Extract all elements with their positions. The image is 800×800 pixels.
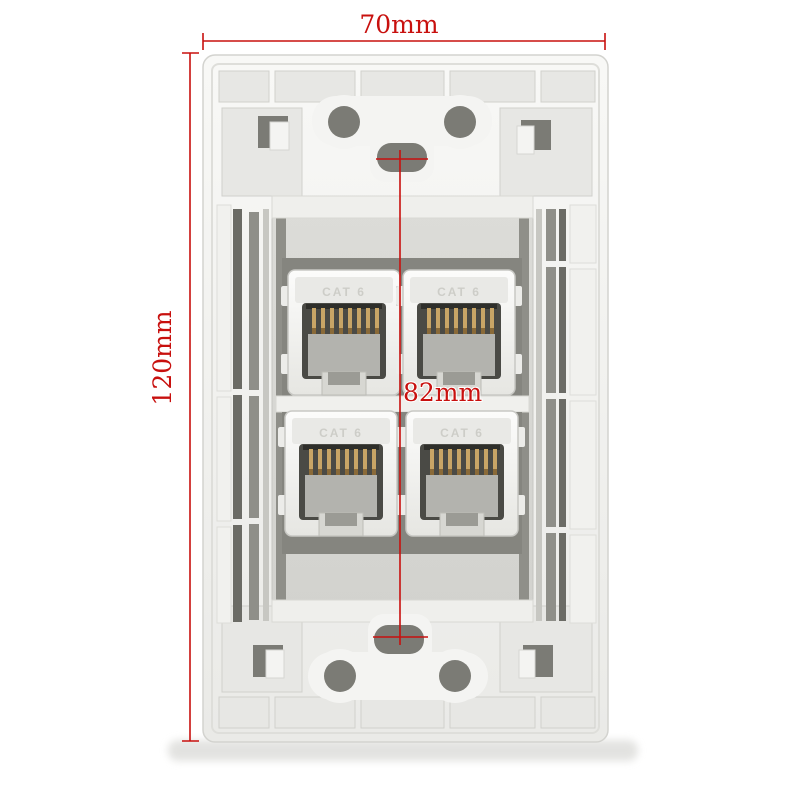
jack-cat6-label: CAT 6 bbox=[322, 285, 366, 299]
keystone-jack-upper-right: CAT 6 bbox=[396, 270, 522, 395]
rib-cell bbox=[217, 527, 231, 623]
vent-slot bbox=[559, 533, 566, 621]
vent-slot bbox=[559, 267, 566, 393]
vent-slot bbox=[546, 267, 556, 393]
vent-slot bbox=[249, 212, 259, 390]
keystone-jack-lower-right: CAT 6 bbox=[399, 411, 525, 536]
wall-plate-figure: CAT 6 CAT 6 CAT 6 CAT 6 bbox=[0, 0, 800, 800]
height-dimension-line bbox=[182, 53, 199, 741]
vent-slot bbox=[546, 209, 556, 261]
vent-slot bbox=[249, 524, 259, 620]
frame-bar-top bbox=[272, 196, 533, 218]
jack-cat6-label: CAT 6 bbox=[437, 285, 481, 299]
central-recess bbox=[272, 196, 533, 622]
width-dimension-label: 70mm bbox=[359, 10, 439, 39]
rib-cell bbox=[217, 205, 231, 391]
screw-hole bbox=[324, 660, 356, 692]
jack-cat6-label: CAT 6 bbox=[319, 426, 363, 440]
rib-cell bbox=[361, 697, 444, 728]
vent-slot bbox=[233, 525, 242, 622]
vent-slot bbox=[546, 533, 556, 621]
product-photo: CAT 6 CAT 6 CAT 6 CAT 6 bbox=[0, 0, 800, 800]
screw-slot bbox=[374, 625, 424, 654]
vent-slot bbox=[233, 395, 242, 519]
ground-shadow bbox=[168, 740, 638, 761]
rib-cell bbox=[219, 697, 269, 728]
keystone-jack-upper-left: CAT 6 bbox=[281, 270, 407, 395]
rib-cell bbox=[570, 205, 596, 263]
rib-cell bbox=[541, 697, 595, 728]
square-boss bbox=[266, 650, 284, 678]
rib-cell bbox=[570, 401, 596, 529]
height-dimension-label: 120mm bbox=[148, 310, 177, 405]
rib-cell bbox=[570, 535, 596, 623]
vent-slot bbox=[559, 399, 566, 527]
screw-hole bbox=[328, 106, 360, 138]
vent-slot bbox=[536, 209, 542, 621]
rib-cell bbox=[541, 71, 595, 102]
vent-slot bbox=[263, 209, 269, 621]
vent-slot bbox=[249, 396, 259, 518]
vent-slot bbox=[546, 399, 556, 527]
vent-slot bbox=[233, 209, 242, 389]
keystone-jack-lower-left: CAT 6 bbox=[278, 411, 404, 536]
screw-hole bbox=[439, 660, 471, 692]
rib-cell bbox=[570, 269, 596, 395]
screw-slot bbox=[377, 143, 427, 172]
vent-slot bbox=[559, 209, 566, 261]
square-boss bbox=[517, 126, 534, 154]
mount-spacing-dimension-label: 82mm bbox=[403, 378, 483, 407]
screw-hole bbox=[444, 106, 476, 138]
square-boss bbox=[270, 122, 289, 150]
rib-cell bbox=[217, 397, 231, 521]
rib-cell bbox=[219, 71, 269, 102]
square-boss bbox=[519, 650, 535, 678]
jack-cat6-label: CAT 6 bbox=[440, 426, 484, 440]
